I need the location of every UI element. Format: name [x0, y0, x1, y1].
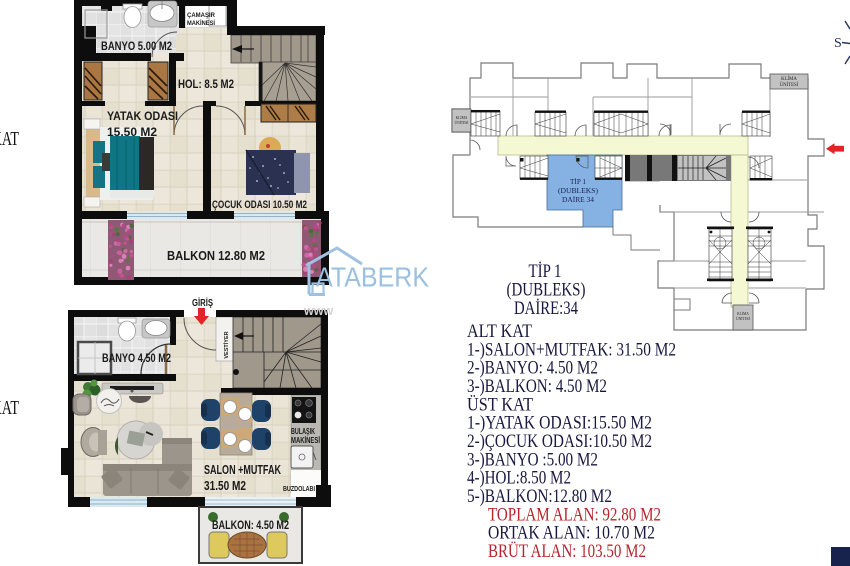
- svg-text:ÜNİTESİ: ÜNİTESİ: [780, 82, 799, 88]
- svg-text:ÜNİTESİ: ÜNİTESİ: [455, 120, 470, 125]
- svg-text:15.50 M2: 15.50 M2: [107, 125, 157, 139]
- svg-text:KLİMA: KLİMA: [781, 76, 797, 82]
- svg-text:ALT KAT: ALT KAT: [0, 397, 19, 419]
- svg-text:BRÜT ALAN: 103.50 M2: BRÜT ALAN: 103.50 M2: [488, 541, 646, 562]
- svg-text:YATAK ODASI: YATAK ODASI: [107, 109, 178, 123]
- svg-text:31.50 M2: 31.50 M2: [204, 479, 246, 493]
- svg-text:ÇOCUK ODASI 10.50 M2: ÇOCUK ODASI 10.50 M2: [212, 199, 307, 211]
- svg-text:ATABERK: ATABERK: [316, 262, 430, 293]
- svg-text:ÜST KAT: ÜST KAT: [0, 127, 19, 150]
- svg-text:DAİRE 34: DAİRE 34: [562, 195, 594, 204]
- svg-text:BALKON 12.80 M2: BALKON 12.80 M2: [167, 249, 265, 263]
- svg-text:DAİRE:34: DAİRE:34: [514, 298, 578, 319]
- svg-text:VESTİYER: VESTİYER: [223, 331, 230, 358]
- svg-text:GİRİŞ: GİRİŞ: [192, 296, 213, 309]
- svg-text:(DUBLEKS): (DUBLEKS): [558, 186, 598, 195]
- svg-text:www: www: [303, 304, 333, 318]
- svg-text:BULAŞIK: BULAŞIK: [291, 427, 315, 436]
- svg-text:TİP 1: TİP 1: [570, 177, 586, 186]
- svg-text:BANYO 4.50 M2: BANYO 4.50 M2: [102, 353, 171, 365]
- svg-text:BUZDOLABI: BUZDOLABI: [283, 484, 315, 493]
- svg-text:ÜNİTESİ: ÜNİTESİ: [736, 316, 751, 321]
- svg-text:MAKİNESİ: MAKİNESİ: [187, 19, 215, 27]
- svg-text:HOL: 8.5 M2: HOL: 8.5 M2: [178, 79, 234, 91]
- svg-text:MAKİNESİ: MAKİNESİ: [291, 436, 320, 445]
- svg-text:SALON +MUTFAK: SALON +MUTFAK: [204, 463, 281, 477]
- svg-text:S: S: [834, 36, 842, 51]
- svg-text:KLİMA: KLİMA: [737, 311, 749, 316]
- svg-text:BALKON: 4.50 M2: BALKON: 4.50 M2: [212, 520, 289, 532]
- svg-text:ÇAMAŞIR: ÇAMAŞIR: [187, 12, 215, 19]
- svg-text:KLİMA: KLİMA: [456, 115, 468, 120]
- svg-text:BANYO 5.00 M2: BANYO 5.00 M2: [101, 41, 172, 53]
